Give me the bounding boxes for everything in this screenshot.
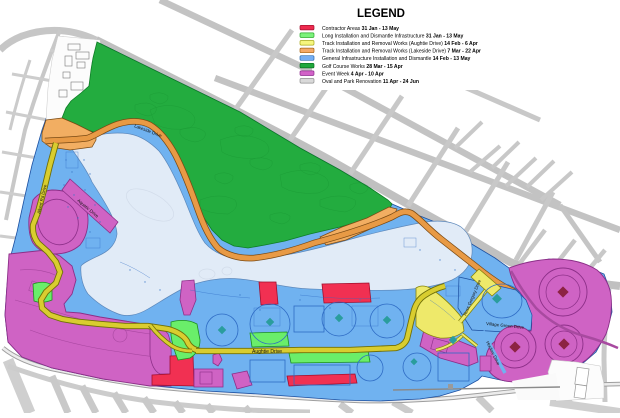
svg-text:General Infrastructure Install: General Infrastructure Installation and … [322, 56, 471, 62]
svg-text:Aughtie Drive: Aughtie Drive [252, 349, 282, 355]
svg-text:Event Week 4 Apr - 10 Apr: Event Week 4 Apr - 10 Apr [322, 71, 384, 77]
svg-text:LEGEND: LEGEND [357, 8, 405, 20]
svg-text:Golf Course Works 28 Mar - 15: Golf Course Works 28 Mar - 15 Apr [322, 64, 403, 70]
svg-text:Track Installation and Removal: Track Installation and Removal Works (Au… [322, 41, 478, 47]
svg-text:Track Installation and Removal: Track Installation and Removal Works (La… [322, 49, 481, 55]
svg-text:Oval and Park Renovation 11 A: Oval and Park Renovation 11 Apr - 24 Jun [322, 79, 419, 85]
svg-text:Long Installation and Dismantl: Long Installation and Dismantle Infrastr… [322, 33, 463, 39]
svg-text:Contractor Areas 31 Jan - 13: Contractor Areas 31 Jan - 13 May [322, 26, 399, 32]
